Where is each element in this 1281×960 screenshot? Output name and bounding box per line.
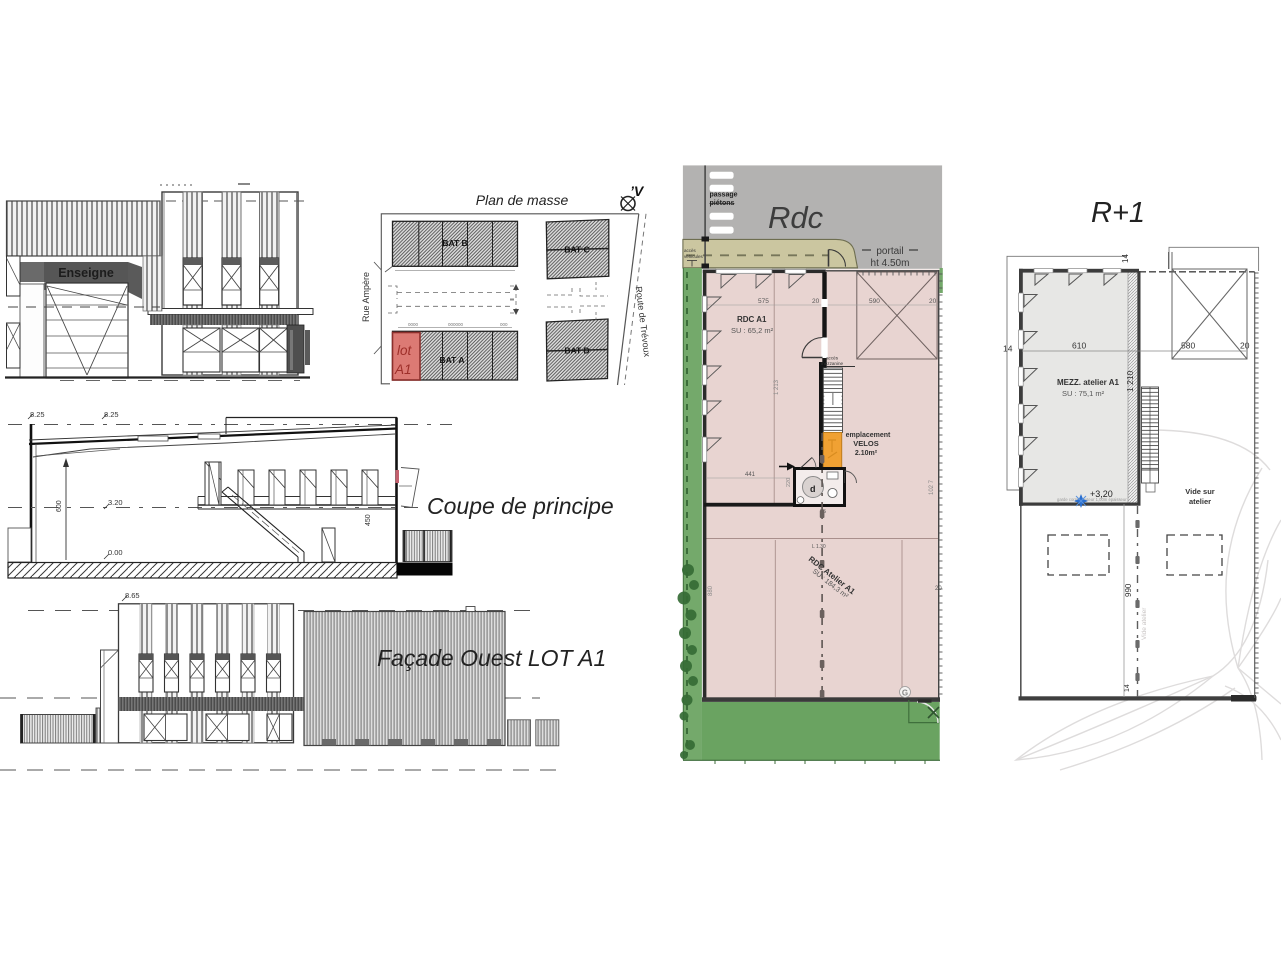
svg-text:590: 590 <box>869 298 880 305</box>
svg-text:’V: ’V <box>630 183 645 199</box>
svg-text:880: 880 <box>708 585 714 596</box>
svg-text:emplacement: emplacement <box>846 432 891 439</box>
svg-text:20: 20 <box>1240 341 1250 351</box>
svg-text:+3,20: +3,20 <box>1090 489 1113 499</box>
svg-text:14: 14 <box>1003 344 1013 354</box>
svg-text:RDC A1: RDC A1 <box>737 315 767 324</box>
svg-text:14: 14 <box>1121 254 1130 263</box>
svg-text:BAT D: BAT D <box>564 346 589 356</box>
svg-text:accès: accès <box>826 356 839 361</box>
svg-text:20: 20 <box>929 298 937 305</box>
svg-text:R+1: R+1 <box>1091 197 1145 229</box>
svg-text:BAT A: BAT A <box>439 355 464 365</box>
svg-text:MEZZ. atelier A1: MEZZ. atelier A1 <box>1057 378 1119 387</box>
svg-text:atelier: atelier <box>1189 497 1211 506</box>
svg-text:Enseigne: Enseigne <box>58 266 114 280</box>
svg-text:1 210: 1 210 <box>1125 370 1135 392</box>
svg-text:2.10m²: 2.10m² <box>855 450 878 457</box>
svg-text:ht 4.50m: ht 4.50m <box>871 258 910 269</box>
svg-text:8.65: 8.65 <box>125 591 140 600</box>
svg-text:Coupe de principe: Coupe de principe <box>427 493 614 519</box>
svg-text:VELOS: VELOS <box>853 439 878 448</box>
svg-text:20: 20 <box>812 298 820 305</box>
svg-text:0000: 0000 <box>408 322 419 327</box>
svg-text:BAT B: BAT B <box>442 238 467 248</box>
svg-text:3.20: 3.20 <box>108 498 123 507</box>
svg-text:Plan de masse: Plan de masse <box>476 192 569 208</box>
svg-text:14: 14 <box>1124 684 1131 692</box>
svg-text:220: 220 <box>786 478 792 487</box>
svg-text:600: 600 <box>56 500 63 512</box>
svg-text:Rdc: Rdc <box>768 200 824 235</box>
svg-text:SU : 75,1 m²: SU : 75,1 m² <box>1062 389 1105 398</box>
svg-text:000: 000 <box>500 322 508 327</box>
svg-text:piétons: piétons <box>710 200 735 207</box>
svg-text:Vide atelier: Vide atelier <box>1141 607 1148 640</box>
svg-text:450: 450 <box>365 514 372 526</box>
svg-text:véhicules: véhicules <box>684 254 704 259</box>
svg-text:BAT C: BAT C <box>564 245 589 255</box>
svg-text:990: 990 <box>1124 583 1133 597</box>
svg-text:passage: passage <box>710 192 738 199</box>
svg-text:Rue Ampère: Rue Ampère <box>361 272 371 322</box>
svg-text:20: 20 <box>935 586 942 592</box>
svg-text:610: 610 <box>1072 341 1086 351</box>
svg-text:portail: portail <box>876 246 903 257</box>
svg-text:102 7: 102 7 <box>929 479 935 495</box>
svg-text:lot: lot <box>397 343 413 358</box>
svg-text:A1: A1 <box>394 362 412 377</box>
svg-text:0.00: 0.00 <box>108 548 123 557</box>
svg-text:L 1.30: L 1.30 <box>812 544 826 550</box>
svg-text:d: d <box>810 484 816 494</box>
svg-text:Vide sur: Vide sur <box>1185 487 1215 496</box>
svg-text:Façade Ouest LOT A1: Façade Ouest LOT A1 <box>377 645 606 671</box>
svg-text:000000: 000000 <box>448 322 464 327</box>
svg-text:accès: accès <box>684 248 697 253</box>
svg-text:575: 575 <box>758 298 769 305</box>
svg-text:SU : 65,2 m²: SU : 65,2 m² <box>731 326 774 335</box>
svg-text:1 213: 1 213 <box>774 379 780 395</box>
svg-text:G: G <box>902 689 908 698</box>
svg-text:mezzanine: mezzanine <box>821 361 844 366</box>
svg-text:441: 441 <box>745 472 756 478</box>
